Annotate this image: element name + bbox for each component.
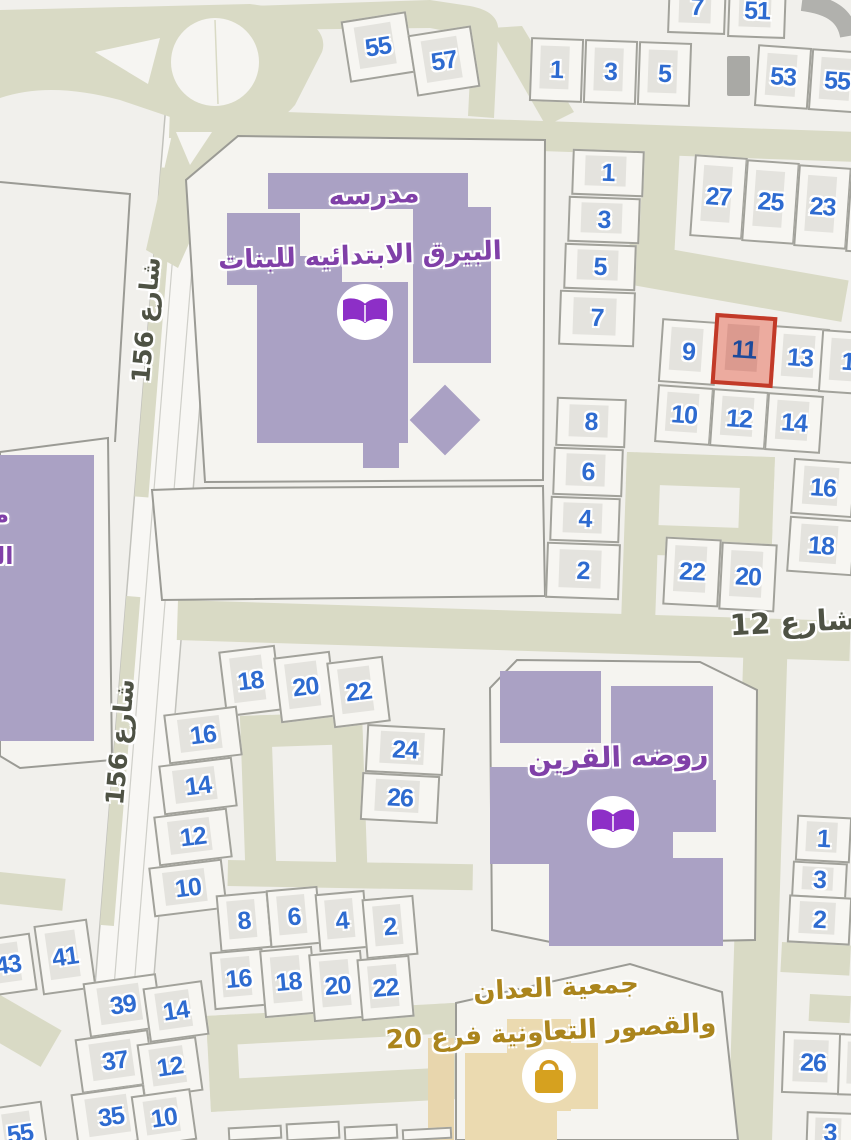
plot-10[interactable]: 10	[131, 1088, 198, 1140]
plot-number: 12	[178, 821, 207, 853]
plot-number: 6	[581, 457, 595, 486]
plot-12[interactable]: 12	[709, 388, 769, 450]
plot-number: 1	[550, 55, 564, 84]
map-canvas[interactable]: 5557135751535527252313578642911131101214…	[0, 0, 851, 1140]
plot-number: 37	[100, 1045, 130, 1077]
plot-5[interactable]: 5	[563, 243, 637, 291]
plot-14[interactable]: 14	[142, 980, 209, 1043]
plot-10[interactable]: 10	[654, 384, 714, 446]
plot-24[interactable]: 24	[365, 724, 445, 776]
plot-number: 11	[731, 335, 757, 366]
plot-number: 20	[734, 562, 761, 592]
plot-27[interactable]: 27	[689, 154, 748, 239]
plot-number: 39	[108, 989, 138, 1021]
plot-51[interactable]: 51	[727, 0, 787, 39]
plot-number: 6	[286, 902, 301, 932]
plot-number: 10	[670, 400, 698, 431]
plot-6[interactable]: 6	[552, 447, 624, 497]
plot-5[interactable]: 5	[637, 41, 692, 107]
plot-number: 3	[823, 1118, 837, 1140]
plot-number: 13	[786, 343, 814, 374]
plot-number: 22	[344, 676, 373, 708]
plot-number: 16	[188, 719, 217, 751]
plot-4[interactable]: 4	[549, 496, 621, 543]
plot-number: 18	[274, 966, 302, 997]
plot-number: 14	[780, 408, 808, 439]
plot-55[interactable]: 55	[0, 1101, 50, 1140]
plot[interactable]	[286, 1121, 341, 1140]
plot-number: 55	[823, 66, 851, 97]
plot-number: 51	[744, 0, 771, 26]
plot-55[interactable]: 55	[341, 11, 416, 83]
plot-number: 22	[371, 972, 399, 1003]
plot-number: 20	[323, 970, 351, 1001]
plot-number: 27	[705, 182, 733, 213]
plot-12[interactable]: 12	[153, 808, 233, 867]
plot-number: 55	[5, 1118, 35, 1140]
plot-9[interactable]: 9	[658, 318, 719, 386]
plot-number: 23	[809, 192, 837, 223]
plot-number: 4	[334, 906, 349, 936]
plot-number: 10	[173, 872, 202, 904]
plot-number: 16	[224, 963, 252, 994]
plot-53[interactable]: 53	[754, 44, 812, 110]
plot-number: 18	[807, 531, 835, 562]
plot-number: 24	[391, 735, 418, 765]
plot-3[interactable]: 3	[583, 39, 638, 105]
plot[interactable]	[344, 1124, 399, 1140]
plot-number: 55	[363, 31, 393, 64]
plot-22[interactable]: 22	[662, 537, 721, 608]
plot-number: 22	[678, 557, 705, 587]
plot-18[interactable]: 18	[786, 516, 851, 576]
plot-55[interactable]: 55	[808, 48, 851, 114]
plot-number: 16	[809, 473, 837, 504]
plot-number: 9	[681, 337, 696, 367]
plot-8[interactable]: 8	[216, 891, 273, 952]
plot-22[interactable]: 22	[326, 656, 391, 728]
plot-number: 3	[604, 57, 618, 86]
plot-number: 1	[601, 158, 615, 187]
plot-3[interactable]: 3	[567, 196, 641, 244]
plot-7[interactable]: 7	[667, 0, 727, 35]
plot-number: 2	[576, 556, 590, 585]
plot-number: 12	[155, 1051, 185, 1083]
plot-number: 1	[816, 824, 830, 854]
plot-25[interactable]: 25	[741, 159, 800, 244]
plot-number: 3	[597, 205, 611, 234]
plot-2[interactable]: 2	[361, 895, 418, 959]
plot-number: 43	[0, 949, 23, 981]
plot-16[interactable]: 16	[163, 706, 243, 765]
plots-layer: 5557135751535527252313578642911131101214…	[0, 0, 851, 1140]
plot-number: 14	[161, 995, 191, 1027]
plot-1[interactable]: 1	[818, 329, 851, 396]
plot-number: 25	[757, 187, 785, 218]
plot-number: 4	[578, 505, 592, 534]
plot-number: 2	[382, 912, 397, 942]
plot-1[interactable]: 1	[571, 149, 645, 197]
plot-number: 57	[429, 45, 459, 78]
plot-number: 26	[386, 783, 413, 813]
plot-20[interactable]: 20	[718, 542, 777, 613]
plot-number: 26	[800, 1048, 827, 1078]
plot-1[interactable]: 1	[795, 815, 851, 864]
plot-57[interactable]: 57	[408, 25, 481, 96]
plot-8[interactable]: 8	[555, 397, 627, 448]
plot-number: 10	[149, 1102, 179, 1134]
plot-2[interactable]: 2	[787, 894, 851, 945]
plot-number: 5	[658, 59, 672, 88]
plot-number: 20	[291, 671, 320, 703]
plot-number: 7	[690, 0, 704, 22]
plot-11[interactable]: 11	[711, 313, 778, 388]
plot-number: 35	[96, 1101, 126, 1133]
plot-23[interactable]: 23	[793, 164, 851, 249]
plot[interactable]	[402, 1127, 453, 1140]
plot-14[interactable]: 14	[764, 392, 824, 454]
plot-number: 53	[769, 62, 797, 93]
plot-number: 2	[812, 905, 826, 935]
plot-number: 7	[590, 304, 604, 333]
plot-number: 8	[584, 408, 598, 437]
plot-number: 5	[593, 252, 607, 281]
plot-number: 14	[183, 770, 212, 802]
plot-26[interactable]: 26	[360, 772, 440, 824]
plot-number: 8	[236, 906, 251, 936]
plot-26[interactable]: 26	[781, 1031, 845, 1095]
plot-number: 12	[725, 404, 753, 435]
plot-number: 41	[50, 941, 80, 973]
plot-1[interactable]: 1	[529, 37, 584, 103]
plot-22[interactable]: 22	[356, 955, 414, 1021]
plot-43[interactable]: 43	[0, 933, 38, 998]
plot-7[interactable]: 7	[558, 290, 636, 348]
plot-3[interactable]: 3	[805, 1111, 851, 1140]
plot[interactable]	[228, 1125, 283, 1140]
plot-number: 3	[812, 865, 826, 895]
plot-number: 1	[841, 348, 851, 378]
plot-14[interactable]: 14	[158, 757, 238, 816]
plot-number: 18	[236, 665, 265, 697]
plot-3[interactable]: 3	[791, 861, 848, 900]
plot-16[interactable]: 16	[790, 458, 851, 518]
plot-2[interactable]: 2	[545, 542, 621, 601]
plot-2[interactable]: 2	[837, 1033, 851, 1097]
plot-12[interactable]: 12	[136, 1036, 203, 1099]
